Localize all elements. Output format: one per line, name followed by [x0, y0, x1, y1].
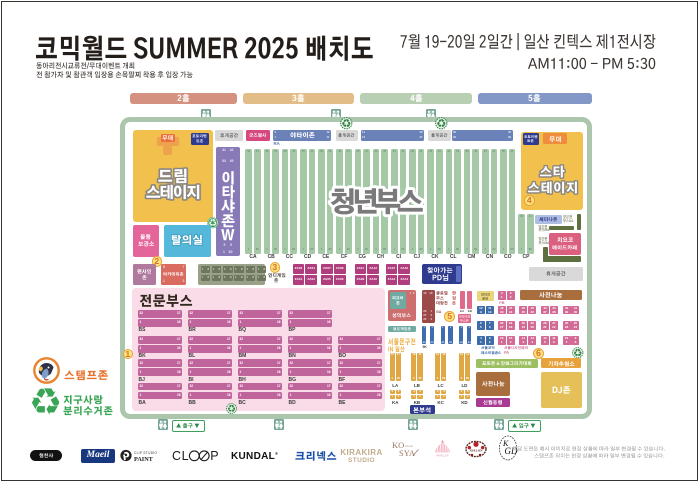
svg-text:CLIP STUDIO: CLIP STUDIO	[134, 451, 157, 455]
svg-text:AVALON: AVALON	[470, 448, 484, 452]
svg-text:CL: CL	[172, 449, 189, 463]
svg-text:P: P	[210, 449, 218, 463]
svg-text:PAINT: PAINT	[134, 456, 154, 463]
svg-text:PAVACLON: PAVACLON	[437, 454, 449, 457]
svg-text:SYA: SYA	[399, 448, 416, 458]
